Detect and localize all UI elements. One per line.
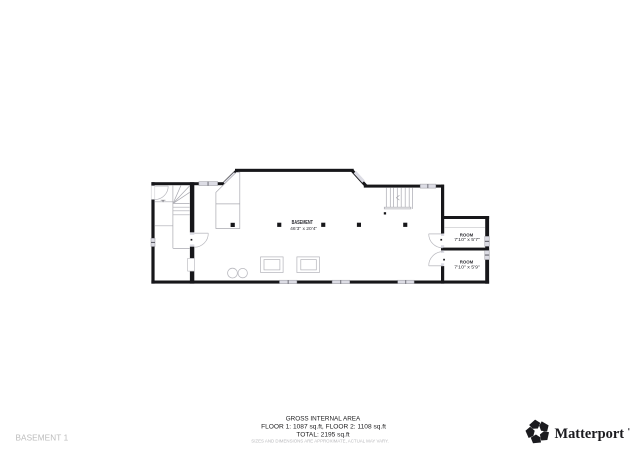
svg-text:GROSS INTERNAL AREA: GROSS INTERNAL AREA — [286, 415, 361, 422]
svg-text:TOTAL: 2195 sq.ft: TOTAL: 2195 sq.ft — [296, 431, 349, 438]
svg-text:7'10" x 5'9": 7'10" x 5'9" — [454, 265, 480, 271]
svg-text:BASEMENT: BASEMENT — [292, 220, 314, 226]
svg-text:ROOM: ROOM — [460, 260, 474, 265]
svg-text:ROOM: ROOM — [460, 233, 474, 238]
svg-text:BASEMENT 1: BASEMENT 1 — [16, 434, 69, 443]
svg-text:SIZES AND DIMENSIONS ARE APPRO: SIZES AND DIMENSIONS ARE APPROXIMATE, AC… — [251, 438, 388, 443]
svg-text:46'3" x 20'4": 46'3" x 20'4" — [290, 226, 317, 232]
svg-text:FLOOR 1: 1087 sq.ft, FLOOR 2:: FLOOR 1: 1087 sq.ft, FLOOR 2: 1108 sq.ft — [261, 424, 386, 431]
svg-text:Matterport: Matterport — [555, 426, 625, 442]
svg-text:7'10" x 5'7": 7'10" x 5'7" — [454, 237, 480, 243]
